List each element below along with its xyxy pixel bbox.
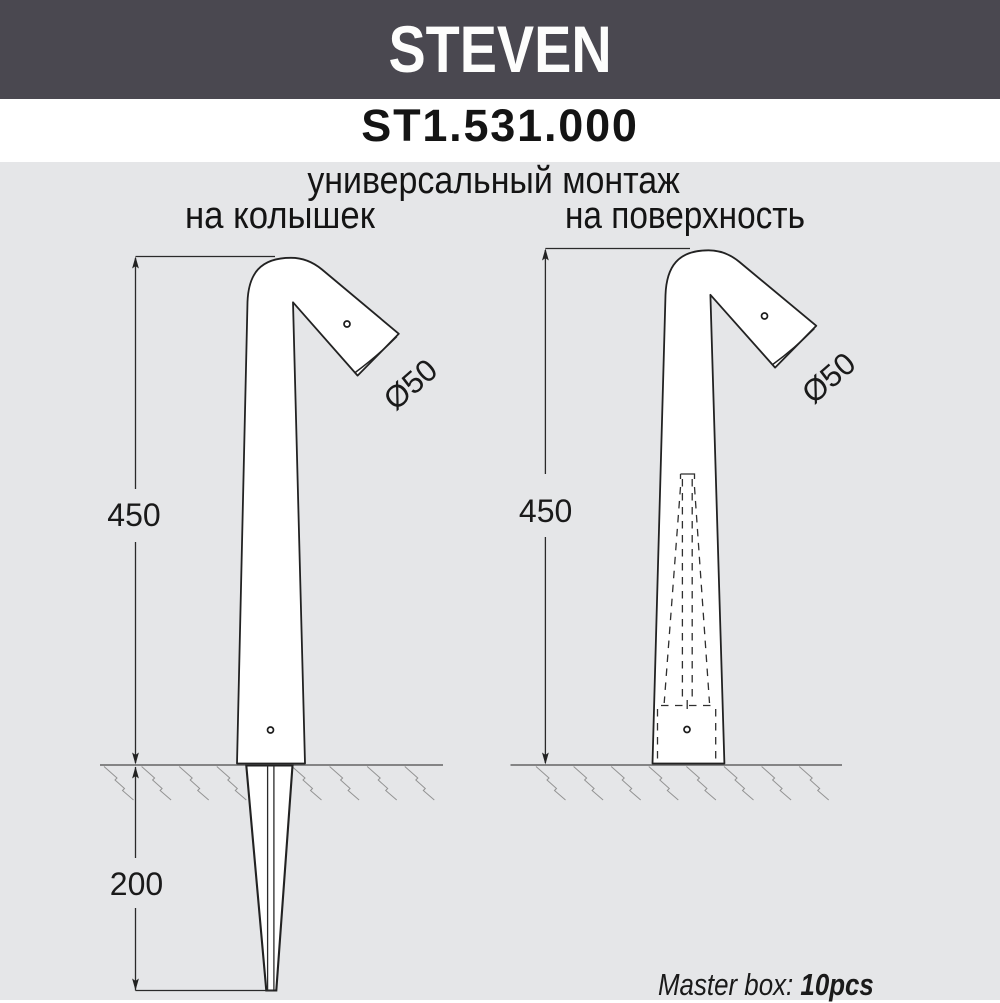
- svg-text:Ø50: Ø50: [377, 352, 444, 417]
- svg-text:Ø50: Ø50: [795, 346, 862, 411]
- svg-text:200: 200: [110, 866, 163, 902]
- svg-text:450: 450: [107, 497, 160, 533]
- svg-text:450: 450: [519, 493, 572, 529]
